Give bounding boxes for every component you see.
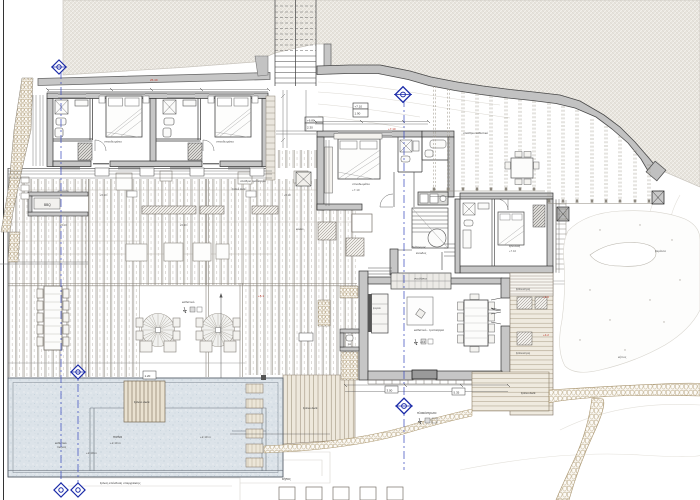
- svg-text:1.90: 1.90: [355, 112, 361, 116]
- svg-text:+2.10 m: +2.10 m: [110, 441, 121, 445]
- svg-text:1.20: 1.20: [145, 374, 151, 378]
- svg-text:ψυγείο: ψυγείο: [373, 306, 381, 310]
- svg-text:κιόσκι: κιόσκι: [296, 227, 304, 231]
- svg-text:ξύλινη επένδυση υπερχείλιση: ξύλινη επένδυση υπερχείλισης: [100, 481, 141, 485]
- svg-text:υπαίθρια τραπεζαρία: υπαίθρια τραπεζαρία: [240, 179, 266, 183]
- svg-text:ξύλινο deck: ξύλινο deck: [521, 391, 536, 395]
- svg-text:+4.6: +4.6: [543, 295, 549, 299]
- svg-text:υπαίθριο καθιστικό: υπαίθριο καθιστικό: [463, 131, 488, 135]
- svg-text:+2.4: +2.4: [420, 340, 426, 344]
- svg-text:βεράντα: βεράντα: [655, 249, 666, 253]
- svg-text:διάδρομος: διάδρομος: [412, 245, 427, 249]
- svg-text:ξενώνας: ξενώνας: [509, 244, 521, 248]
- svg-text:ξύλινο deck: ξύλινο deck: [232, 187, 246, 191]
- svg-text:υπνοδωμάτιο: υπνοδωμάτιο: [216, 140, 234, 144]
- svg-text:+7.10: +7.10: [355, 105, 363, 109]
- svg-text:ξαπλώστρες: ξαπλώστρες: [516, 351, 531, 355]
- svg-text:BBQ: BBQ: [44, 203, 51, 207]
- svg-text:5.35: 5.35: [454, 391, 460, 395]
- svg-text:+4.2: +4.2: [543, 333, 549, 337]
- svg-text:υπνοδωμάτιο: υπνοδωμάτιο: [352, 182, 370, 186]
- svg-text:+7.10: +7.10: [388, 127, 396, 131]
- svg-text:πισίνα: πισίνα: [113, 435, 122, 439]
- svg-text:πισίνας: πισίνας: [57, 445, 67, 449]
- svg-text:+7.10: +7.10: [509, 249, 517, 253]
- svg-text:25.49: 25.49: [150, 78, 158, 82]
- svg-text:+5.10: +5.10: [100, 193, 107, 197]
- svg-text:+7.10: +7.10: [352, 188, 360, 192]
- svg-text:+6.80: +6.80: [307, 119, 315, 123]
- svg-text:3.00: 3.00: [387, 389, 393, 393]
- svg-text:υπνοδωμάτιο: υπνοδωμάτιο: [104, 140, 122, 144]
- svg-text:ξαπλώστρες: ξαπλώστρες: [516, 287, 531, 291]
- svg-text:είσοδος: είσοδος: [416, 251, 427, 255]
- svg-text:+2.10 m: +2.10 m: [200, 435, 211, 439]
- svg-text:ντουλάπια: ντουλάπια: [414, 277, 427, 281]
- svg-text:+5.10: +5.10: [180, 223, 187, 227]
- svg-text:καθιστικό: καθιστικό: [182, 300, 195, 304]
- svg-text:πλακόστρωτο: πλακόστρωτο: [417, 411, 437, 415]
- svg-text:κήπος: κήπος: [618, 355, 627, 359]
- svg-text:+5.10: +5.10: [284, 193, 291, 197]
- svg-text:2.30: 2.30: [307, 126, 313, 130]
- svg-text:ξύλινο deck: ξύλινο deck: [303, 406, 318, 410]
- svg-text:κήπος: κήπος: [282, 477, 291, 481]
- svg-text:ξύλινο deck: ξύλινο deck: [134, 400, 150, 404]
- svg-text:καθιστικό - τραπεζαρία: καθιστικό - τραπεζαρία: [414, 328, 444, 332]
- svg-text:+2.10 m: +2.10 m: [86, 451, 97, 455]
- svg-text:+5.1: +5.1: [258, 294, 264, 298]
